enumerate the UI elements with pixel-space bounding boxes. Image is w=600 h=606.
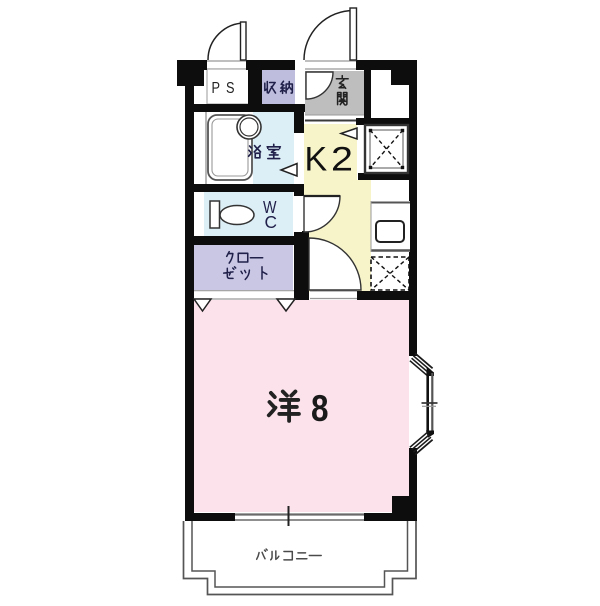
svg-text:2: 2 bbox=[331, 141, 353, 179]
svg-text:K: K bbox=[305, 141, 328, 179]
svg-text:C: C bbox=[265, 212, 278, 232]
svg-text:8: 8 bbox=[311, 388, 329, 429]
svg-text:PS: PS bbox=[212, 80, 241, 97]
